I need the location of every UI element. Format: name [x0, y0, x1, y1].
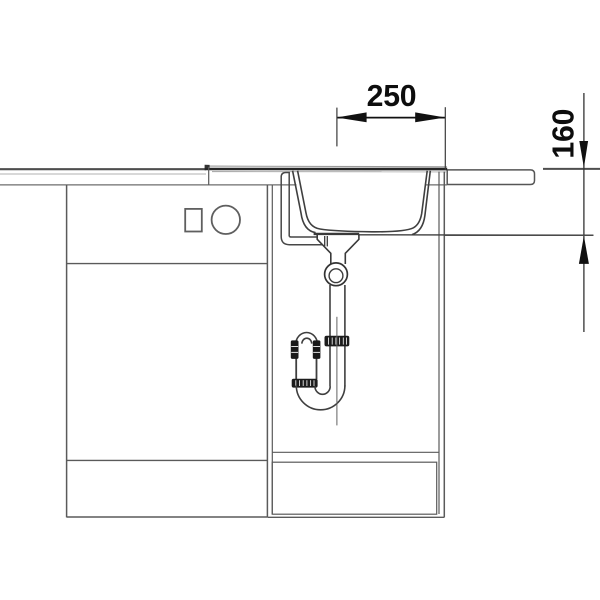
- svg-text:160: 160: [548, 109, 581, 159]
- svg-text:250: 250: [367, 80, 417, 113]
